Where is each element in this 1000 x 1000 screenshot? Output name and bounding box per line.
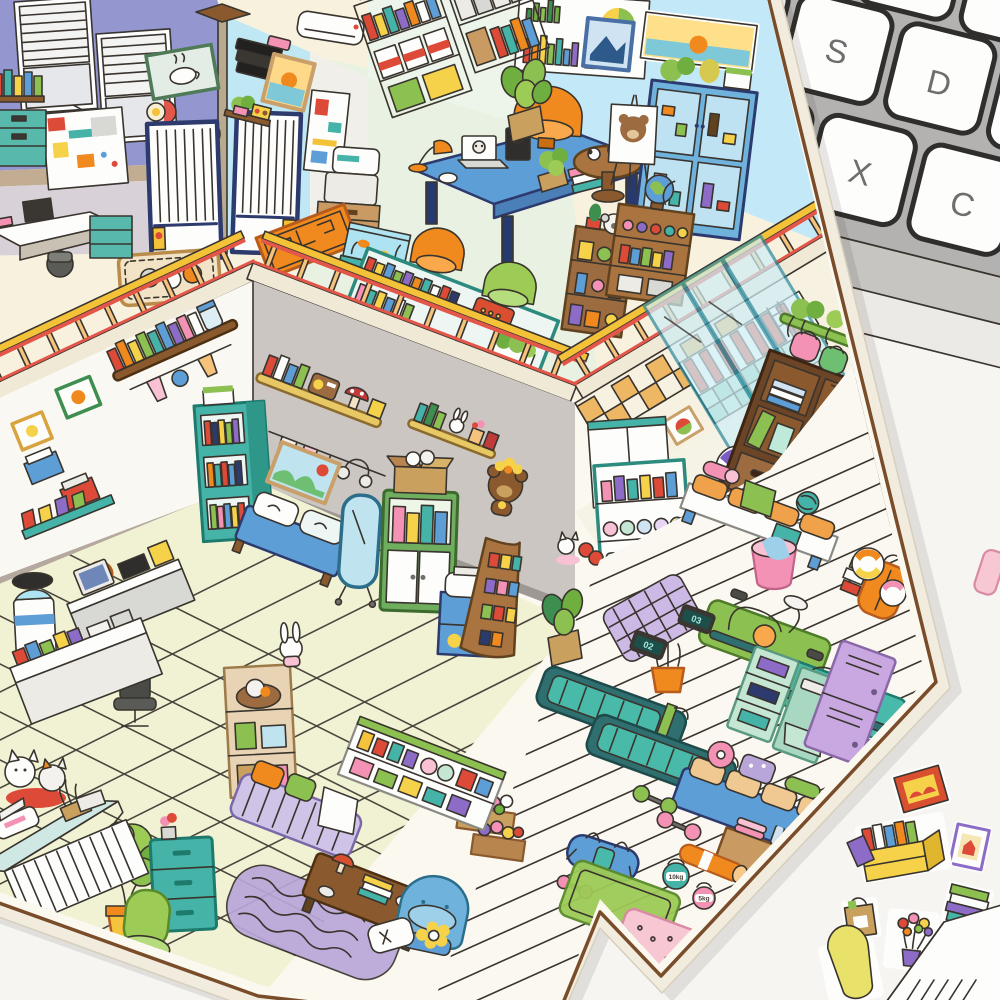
kettlebell-pink: 5kg [693, 883, 715, 909]
striped-ball-pink [880, 580, 906, 606]
photo-canvas: S D X C [0, 0, 1000, 1000]
photo-of-isometric-sticker-scene: S D X C [0, 0, 1000, 1000]
blue-picture-frame [583, 18, 634, 71]
kettlebell-label-10kg: 10kg [669, 874, 684, 881]
sunset-picture-frame [262, 54, 314, 111]
laundry-bucket [752, 536, 796, 589]
striped-ball-orange [852, 548, 884, 580]
keyboard-key-d: D [882, 20, 998, 136]
bulletin-board [42, 107, 128, 190]
coffee-picture-frame [146, 45, 219, 100]
coffee-cup [439, 173, 457, 183]
kettlebell-label-5kg: 5kg [698, 896, 709, 903]
striped-door [147, 122, 222, 260]
